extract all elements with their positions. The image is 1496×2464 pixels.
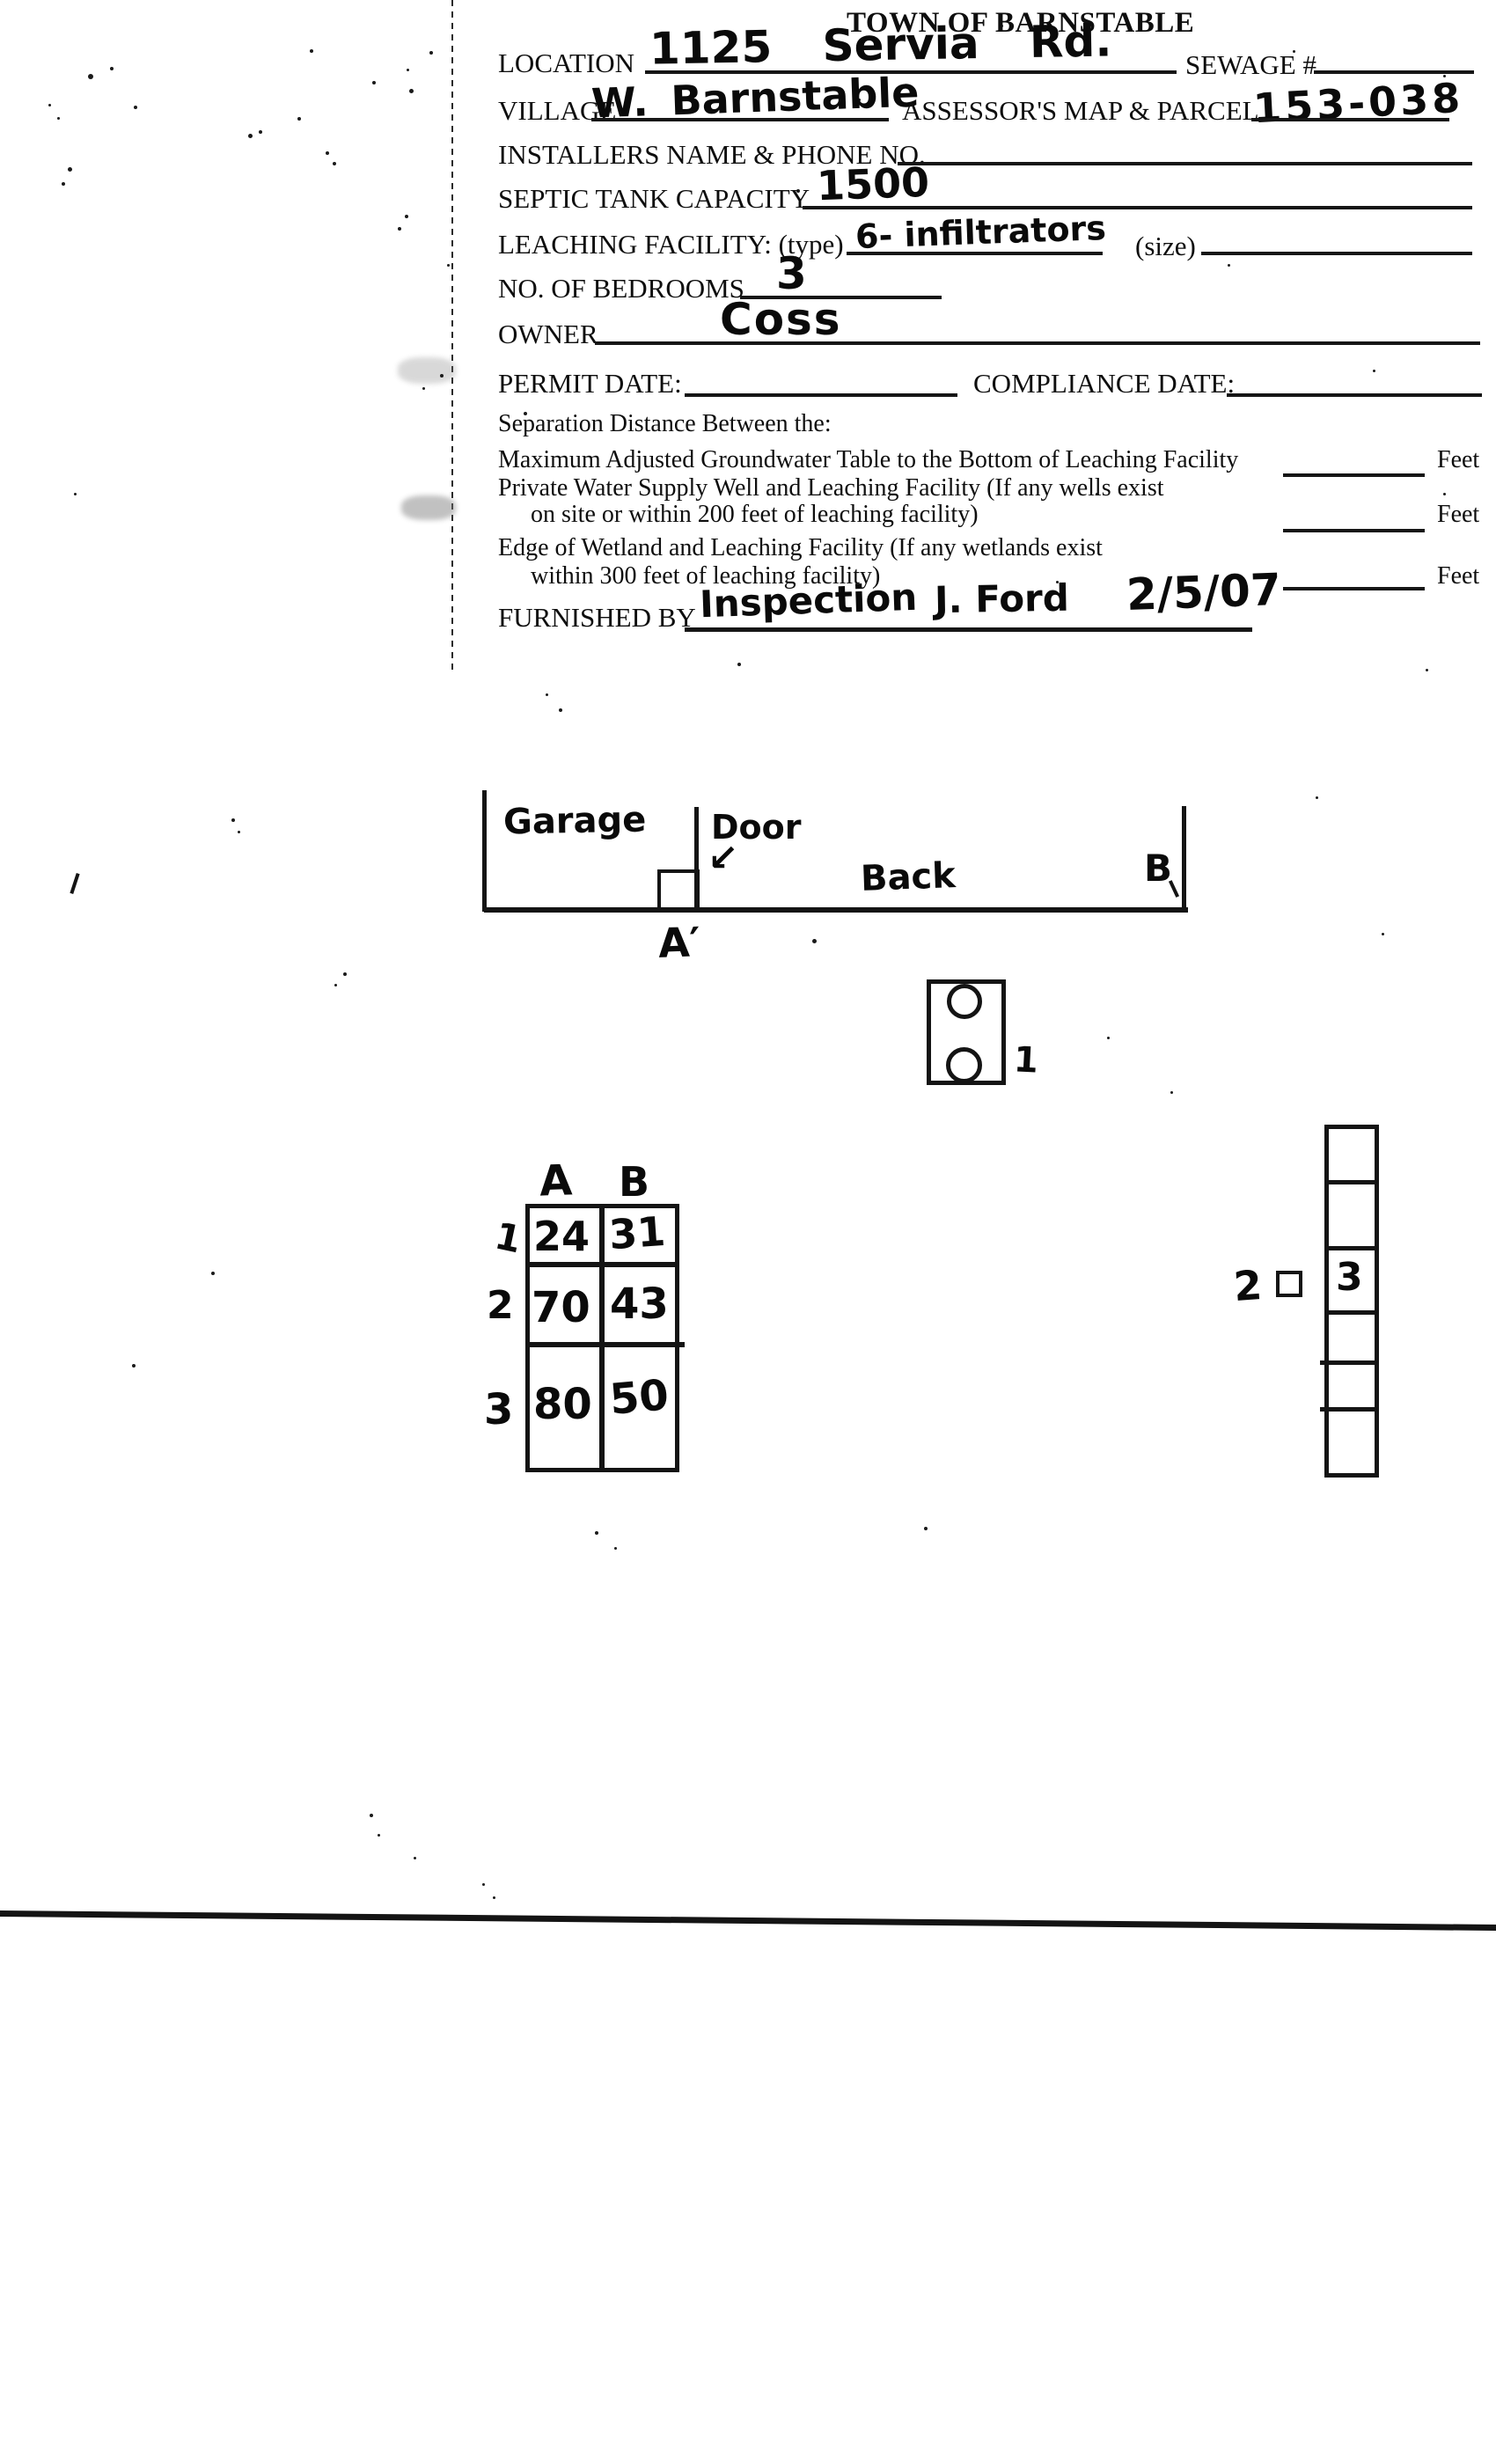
scanned-septic-form-page: TOWN OF BARNSTABLE LOCATION 1125 Servia … xyxy=(0,0,1496,2464)
table-row-divider-2 xyxy=(525,1342,685,1347)
size-underline xyxy=(1201,252,1472,255)
table-cell-r2-b: 43 xyxy=(610,1280,669,1329)
table-cell-r3-a: 80 xyxy=(533,1380,592,1429)
feet-label-2: Feet xyxy=(1437,501,1479,529)
stack-divider-3 xyxy=(1324,1310,1377,1315)
table-col-header-a: A xyxy=(539,1155,573,1206)
stack-divider-4 xyxy=(1320,1360,1375,1365)
septic-capacity-value: 1500 xyxy=(816,158,930,209)
table-cell-r1-b: 31 xyxy=(607,1207,667,1258)
feet-label-1: Feet xyxy=(1437,446,1479,474)
assessors-map-parcel-label: ASSESSOR'S MAP & PARCEL xyxy=(902,95,1259,127)
stack-cell-number: 3 xyxy=(1336,1255,1363,1300)
owner-value: Coss xyxy=(720,294,842,345)
table-col-header-b: B xyxy=(619,1158,649,1206)
feet-label-3: Feet xyxy=(1437,562,1479,590)
separation-heading: Separation Distance Between the: xyxy=(498,410,832,438)
well-line-1: Private Water Supply Well and Leaching F… xyxy=(498,474,1164,502)
stack-divider-2 xyxy=(1324,1246,1377,1250)
permit-date-label: PERMIT DATE: xyxy=(498,368,682,400)
furnished-by-value-3: 2/5/07 xyxy=(1126,564,1282,620)
scan-smudge xyxy=(398,357,456,384)
location-label: LOCATION xyxy=(498,48,634,79)
stack-outline xyxy=(1324,1125,1379,1478)
compliance-date-underline xyxy=(1227,393,1482,397)
sewage-number-label: SEWAGE # xyxy=(1185,49,1316,81)
scan-artifact-vertical-line xyxy=(451,0,453,673)
table-row-label-3: 3 xyxy=(484,1385,513,1434)
leaching-type-value: 6- infiltrators xyxy=(854,209,1106,256)
sketch-tank-number: 1 xyxy=(1013,1039,1039,1081)
owner-label: OWNER xyxy=(498,319,598,350)
table-cell-r2-a: 70 xyxy=(532,1283,590,1332)
sketch-left-wall-line xyxy=(482,790,487,912)
table-cell-r1-a: 24 xyxy=(533,1213,590,1260)
sketch-corner-a-label: A′ xyxy=(657,918,701,967)
sketch-garage-label: Garage xyxy=(503,800,647,843)
sketch-tank-cover-bottom xyxy=(946,1047,982,1083)
village-underline xyxy=(591,118,889,121)
septic-capacity-label: SEPTIC TANK CAPACITY xyxy=(498,183,810,215)
table-row-label-1: 1 xyxy=(491,1214,525,1261)
owner-underline xyxy=(595,341,1480,345)
furnished-by-value-2: J. Ford xyxy=(935,576,1070,622)
wetland-line-1: Edge of Wetland and Leaching Facility (I… xyxy=(498,534,1103,562)
assessors-map-parcel-value: 153-038 xyxy=(1252,74,1465,132)
location-value: 1125 Servia Rd. xyxy=(649,15,1112,74)
well-line-2: on site or within 200 feet of leaching f… xyxy=(531,501,979,529)
table-cell-r3-b: 50 xyxy=(608,1370,671,1425)
size-label: (size) xyxy=(1135,231,1196,262)
sewage-number-underline xyxy=(1314,70,1474,74)
wetland-feet-underline xyxy=(1283,587,1425,590)
furnished-by-underline xyxy=(685,627,1252,632)
furnished-by-label: FURNISHED BY xyxy=(498,602,696,634)
assessors-map-parcel-underline xyxy=(1251,118,1449,121)
sketch-back-label: Back xyxy=(860,855,956,899)
sketch-door-arrow-icon: ↙ xyxy=(708,836,738,879)
groundwater-line: Maximum Adjusted Groundwater Table to th… xyxy=(498,446,1238,474)
sketch-back-wall-line xyxy=(484,907,1188,913)
well-feet-underline xyxy=(1283,529,1425,532)
scan-smudge xyxy=(401,495,456,520)
scan-artifact-bottom-line xyxy=(0,1910,1496,1931)
bedrooms-label: NO. OF BEDROOMS xyxy=(498,273,744,304)
sketch-tank-cover-top xyxy=(947,984,982,1019)
leaching-type-underline xyxy=(847,252,1103,255)
stack-divider-5 xyxy=(1320,1407,1375,1412)
bedrooms-value: 3 xyxy=(776,248,807,299)
table-row-label-2: 2 xyxy=(487,1283,514,1328)
groundwater-feet-underline xyxy=(1283,473,1425,477)
permit-date-underline xyxy=(685,393,957,397)
septic-capacity-underline xyxy=(803,206,1472,209)
stack-left-number: 2 xyxy=(1232,1261,1264,1310)
stack-divider-1 xyxy=(1324,1180,1377,1184)
stray-slash-mark xyxy=(70,873,79,894)
compliance-date-label: COMPLIANCE DATE: xyxy=(973,368,1235,400)
furnished-by-value-1: Inspection xyxy=(699,576,918,627)
sketch-corner-b-label: B xyxy=(1144,847,1172,890)
sketch-right-wall-line xyxy=(1182,806,1186,910)
installers-underline xyxy=(898,162,1472,165)
table-column-divider xyxy=(599,1204,605,1468)
sketch-door-step-square xyxy=(657,869,700,912)
stack-left-square xyxy=(1276,1271,1302,1297)
table-row-divider-1 xyxy=(525,1262,675,1267)
